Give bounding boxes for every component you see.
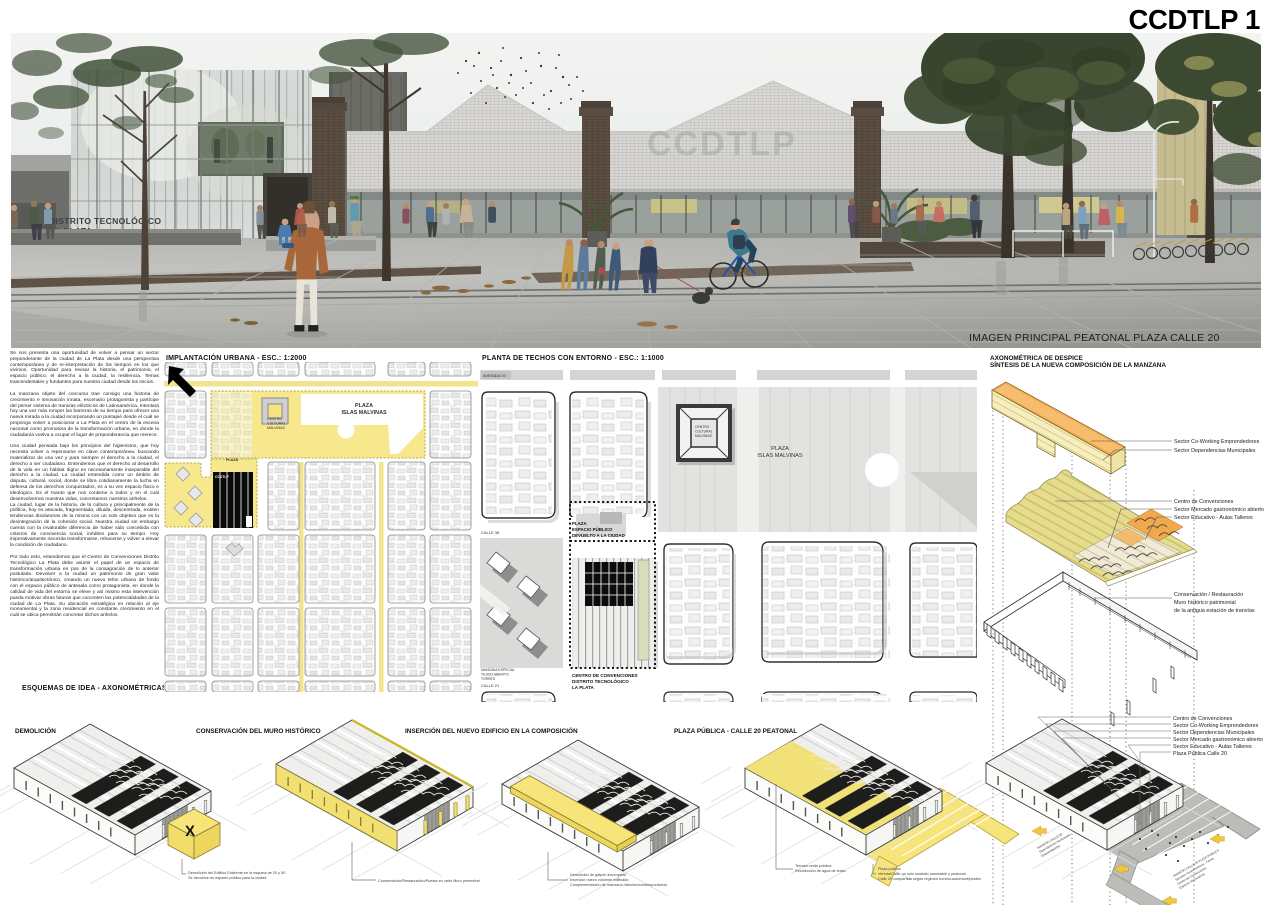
svg-text:DISTRITO TECNOLÓGICO: DISTRITO TECNOLÓGICO <box>572 677 629 684</box>
svg-text:PLAZA: PLAZA <box>226 458 238 462</box>
svg-text:CALLE 21: CALLE 21 <box>481 683 500 688</box>
svg-text:Sector Dependencias Municipale: Sector Dependencias Municipales <box>1174 448 1256 454</box>
svg-text:Centro de Convenciones: Centro de Convenciones <box>1173 716 1233 722</box>
svg-text:Sector Educativo - Aulas Talle: Sector Educativo - Aulas Talleres <box>1173 744 1252 750</box>
svg-text:Demolición del Edificio Existe: Demolición del Edificio Existente en la … <box>188 871 285 875</box>
svg-text:MALVINAS: MALVINAS <box>695 434 713 438</box>
svg-text:CENTRO DE CONVENCIONES: CENTRO DE CONVENCIONES <box>572 673 638 678</box>
svg-text:de la antigua estación de tran: de la antigua estación de tranvías <box>1174 608 1255 614</box>
svg-text:Sector Co-Working Emprendedore: Sector Co-Working Emprendedores <box>1174 439 1260 445</box>
svg-text:Recolección de agua de lluvia: Recolección de agua de lluvia <box>795 869 846 873</box>
svg-text:Inserción nuevo volumen edific: Inserción nuevo volumen edificado <box>570 878 628 882</box>
svg-text:ESPACIO PÚBLICO: ESPACIO PÚBLICO <box>572 527 613 532</box>
svg-text:TEJIDO ABIERTO: TEJIDO ABIERTO <box>481 673 509 677</box>
svg-text:X: X <box>185 823 196 840</box>
svg-text:MANZANA ESPECIAL: MANZANA ESPECIAL <box>481 668 515 672</box>
svg-text:CCDTLP: CCDTLP <box>215 475 229 479</box>
svg-text:TORRES: TORRES <box>481 677 496 681</box>
svg-text:Sector Mercado gastronómico ab: Sector Mercado gastronómico abierto <box>1173 737 1263 743</box>
svg-text:Plaza pública: Plaza pública <box>878 867 901 871</box>
svg-text:Sector Educativo - Aulas Talle: Sector Educativo - Aulas Talleres <box>1174 515 1253 521</box>
svg-text:AVENIDA 19: AVENIDA 19 <box>483 373 506 378</box>
svg-text:Se devuelve en espacio público: Se devuelve en espacio público para la c… <box>188 876 266 880</box>
svg-text:Plaza Pública Calle 20: Plaza Pública Calle 20 <box>1173 751 1227 757</box>
svg-text:PLAZA: PLAZA <box>572 521 587 526</box>
svg-text:DEVUELTO A LA CIUDAD: DEVUELTO A LA CIUDAD <box>572 533 625 538</box>
svg-text:Conservación / Restauración: Conservación / Restauración <box>1174 592 1243 598</box>
svg-text:Calle 20 compartida según régi: Calle 20 compartida según régimen horari… <box>878 877 981 881</box>
svg-text:ISLAS MALVINAS: ISLAS MALVINAS <box>757 453 803 459</box>
svg-text:CULTURAL: CULTURAL <box>695 430 713 434</box>
svg-text:Terraza verde pública: Terraza verde pública <box>795 864 832 868</box>
svg-text:ISLAS MALVINAS: ISLAS MALVINAS <box>341 410 387 416</box>
svg-text:Muro histórico patrimonial: Muro histórico patrimonial <box>1174 600 1236 606</box>
svg-text:Complementación de manzana his: Complementación de manzana histórico/con… <box>570 883 667 887</box>
svg-text:Conservación/Restauración/Pues: Conservación/Restauración/Puesta en valo… <box>378 879 480 883</box>
svg-text:Sector Co-Working Emprendedore: Sector Co-Working Emprendedores <box>1173 723 1259 729</box>
svg-text:CALLE 38: CALLE 38 <box>481 530 500 535</box>
svg-text:PLAZA: PLAZA <box>771 446 789 452</box>
svg-text:CULTURAL: CULTURAL <box>267 422 286 426</box>
svg-text:LA PLATA: LA PLATA <box>572 685 595 690</box>
svg-text:Vereda/Calle: un solo sustrato: Vereda/Calle: un solo sustrato caminable… <box>878 872 966 876</box>
svg-text:Sector Dependencias Municipale: Sector Dependencias Municipales <box>1173 730 1255 736</box>
svg-text:Centro de Convenciones: Centro de Convenciones <box>1174 499 1234 505</box>
svg-text:CENTRO: CENTRO <box>695 425 710 429</box>
svg-text:Demolición de galpón incomplet: Demolición de galpón incompleto <box>570 873 626 877</box>
svg-text:CENTRO: CENTRO <box>267 417 282 421</box>
svg-text:PLAZA: PLAZA <box>355 403 373 409</box>
svg-text:IMAGEN PRINCIPAL PEATONAL PLAZ: IMAGEN PRINCIPAL PEATONAL PLAZA CALLE 20 <box>969 332 1220 344</box>
svg-text:Sector Mercado gastronómico ab: Sector Mercado gastronómico abierto <box>1174 507 1264 513</box>
svg-text:MALVINAS: MALVINAS <box>267 426 286 430</box>
